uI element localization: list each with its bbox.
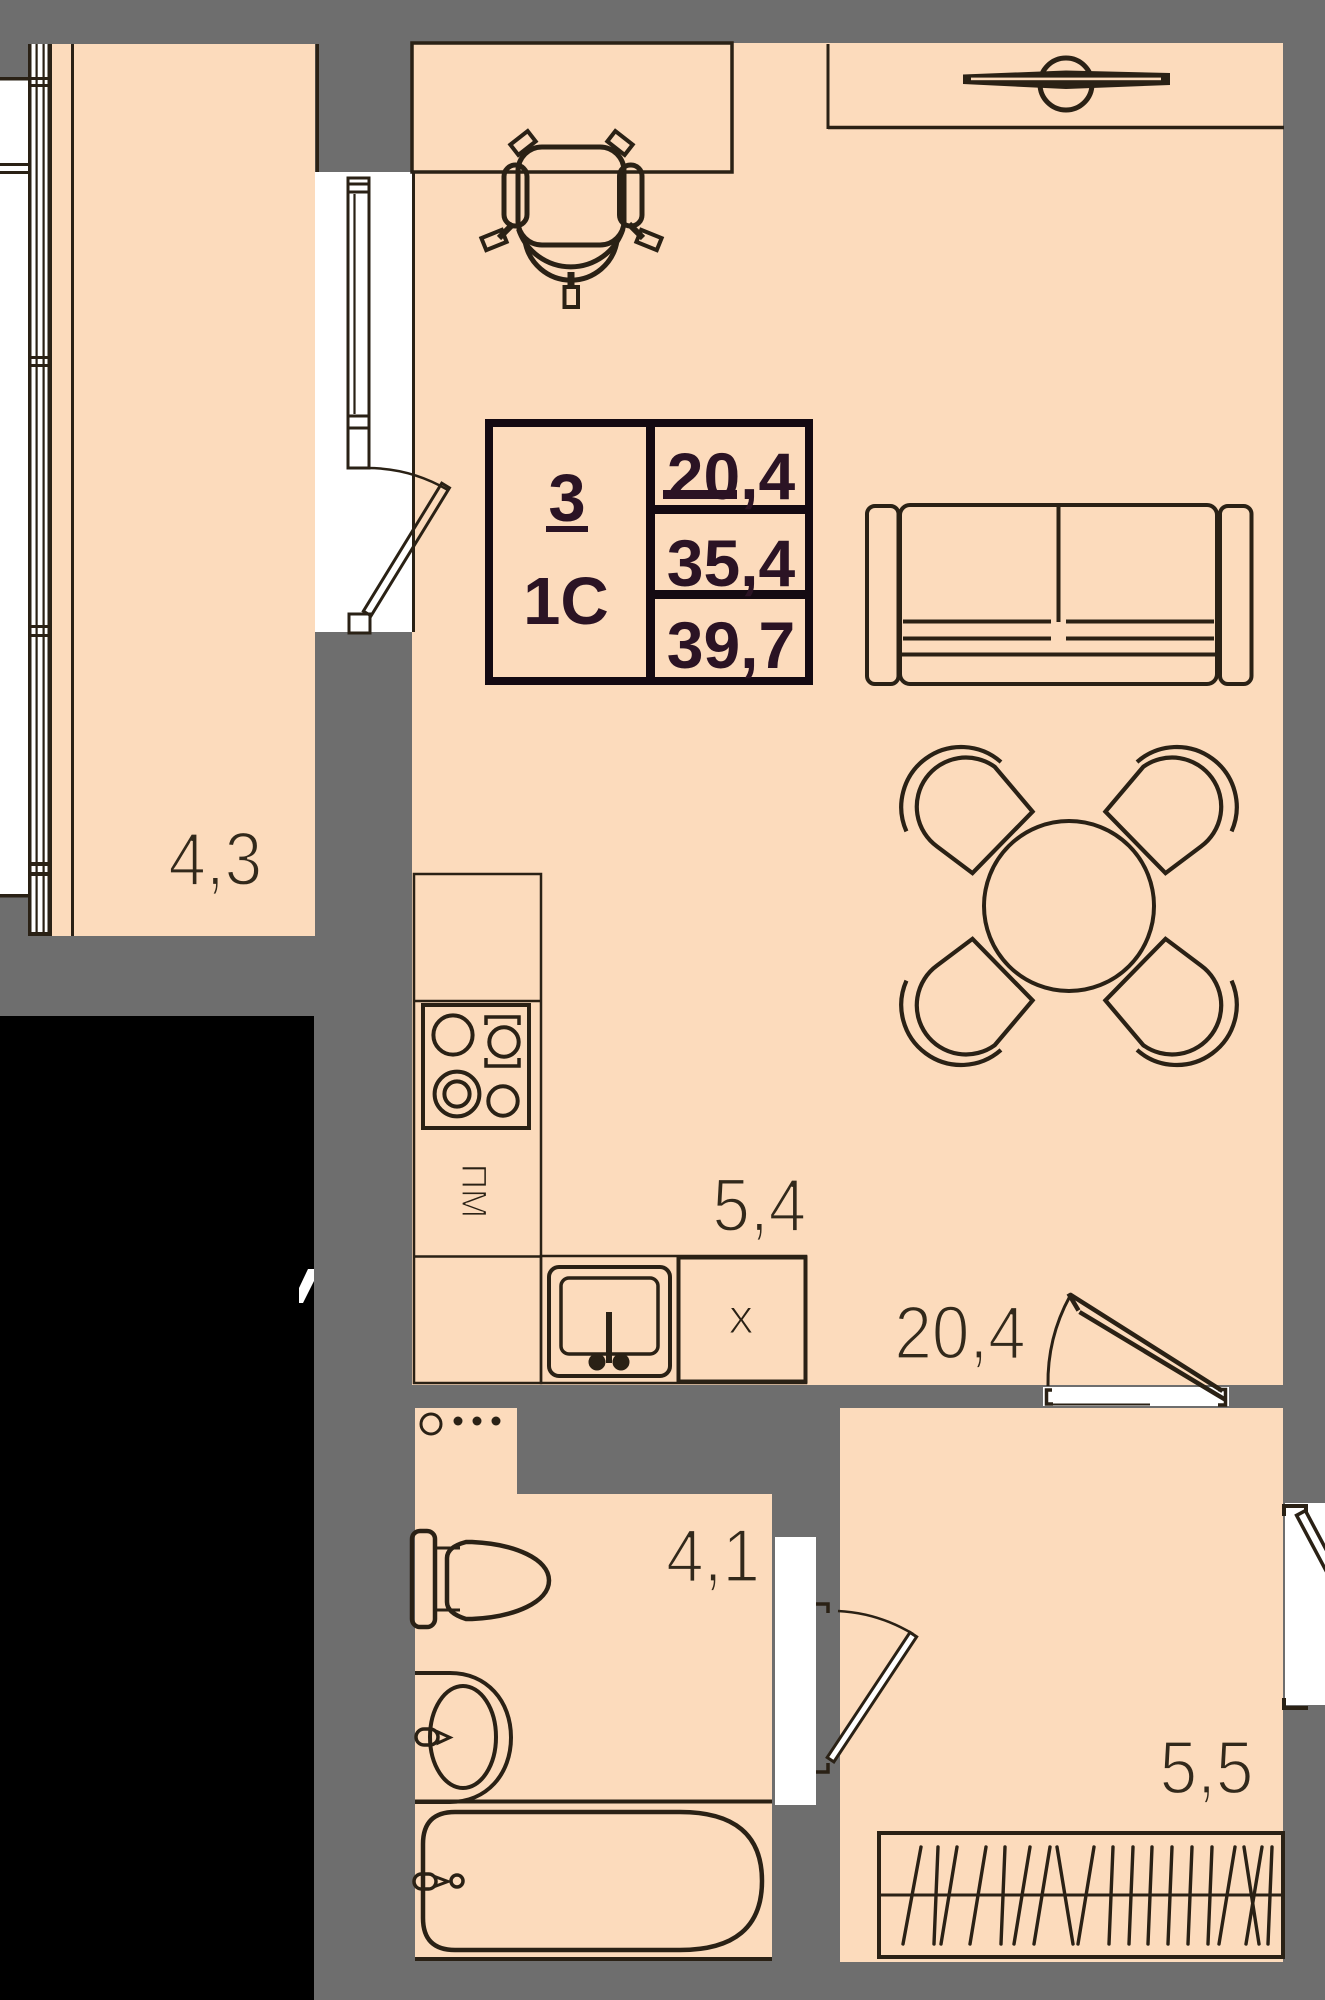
svg-text:1С: 1С — [523, 564, 609, 639]
svg-text:5,5: 5,5 — [1160, 1726, 1254, 1810]
svg-text:ПМ: ПМ — [454, 1164, 493, 1218]
svg-text:3: 3 — [548, 461, 585, 536]
svg-text:4,3: 4,3 — [168, 818, 262, 902]
svg-text:4,1: 4,1 — [666, 1514, 760, 1598]
svg-text:39,7: 39,7 — [667, 608, 795, 682]
svg-text:5,4: 5,4 — [712, 1164, 806, 1248]
svg-text:20,4: 20,4 — [667, 439, 796, 513]
svg-text:35,4: 35,4 — [667, 526, 796, 600]
svg-text:20,4: 20,4 — [894, 1291, 1025, 1375]
svg-text:X: X — [729, 1300, 754, 1341]
